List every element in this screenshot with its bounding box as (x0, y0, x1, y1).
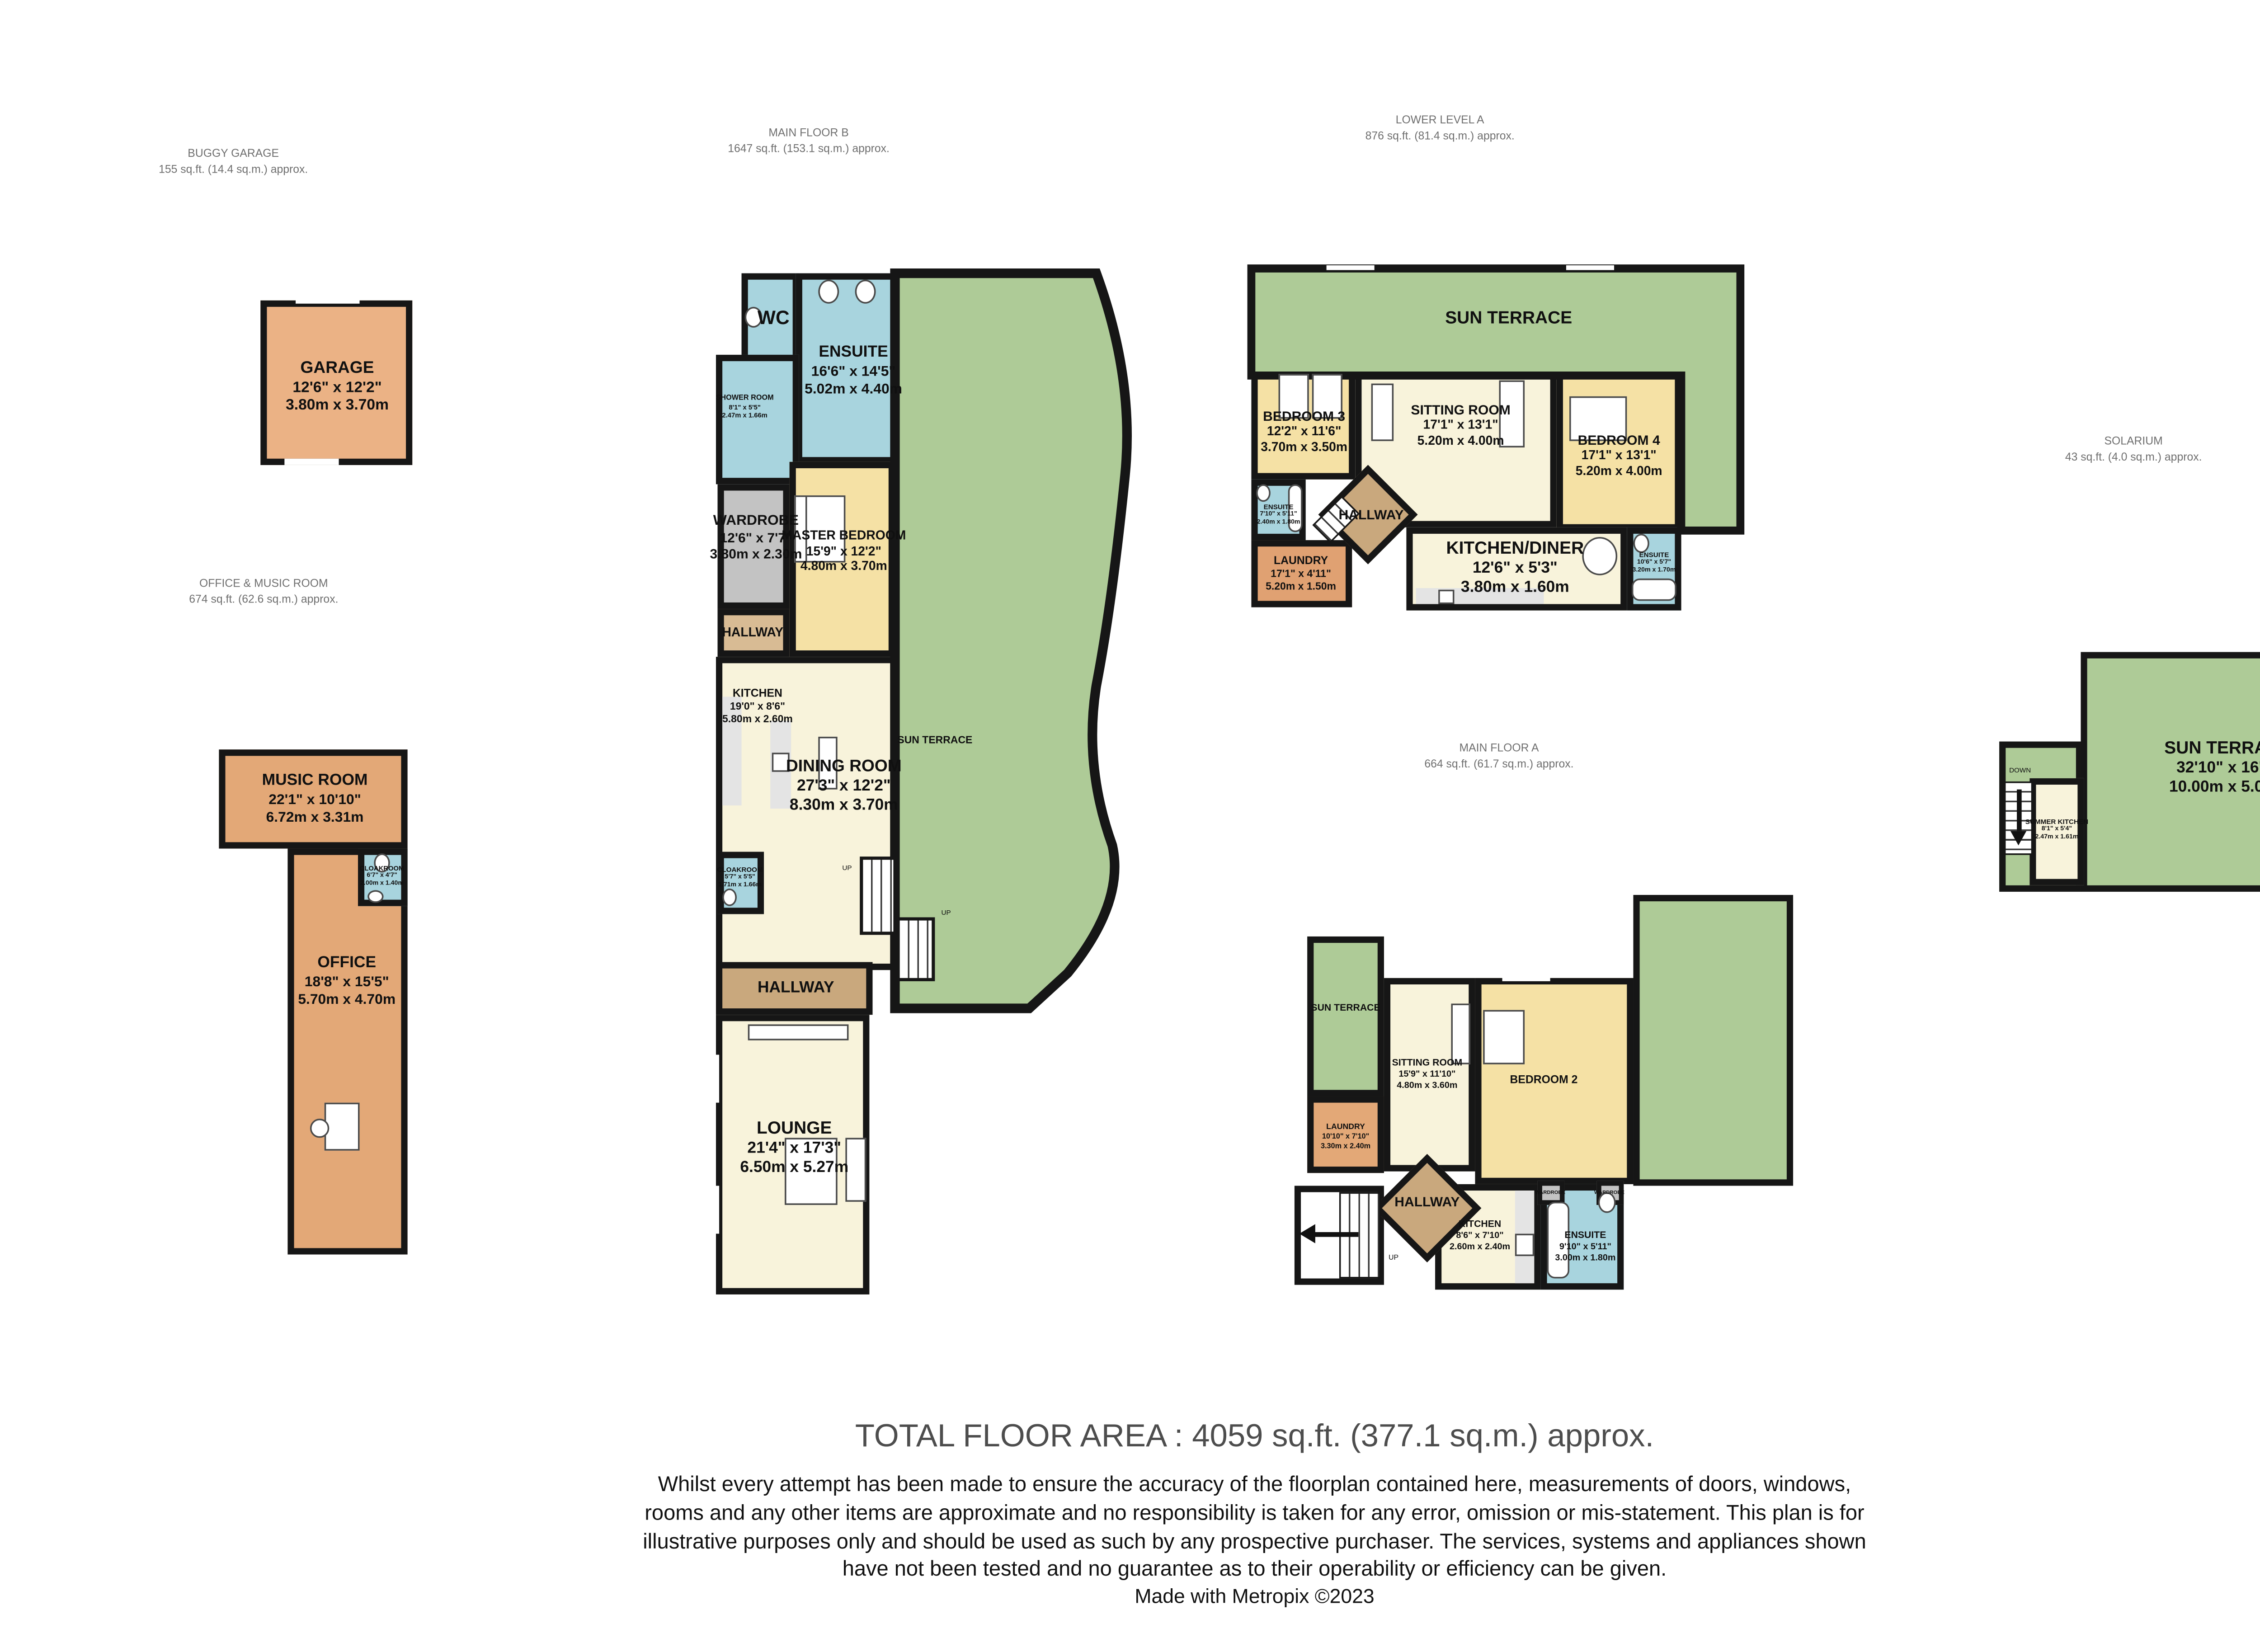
section-name: BUGGY GARAGE (159, 147, 308, 163)
stairs-main-b-upper (860, 857, 896, 935)
room-dim-metric: 6.50m x 5.27m (740, 1159, 848, 1178)
metropix-credit: Made with Metropix ©2023 (626, 1586, 1883, 1608)
section-name: MAIN FLOOR A (1424, 742, 1573, 758)
room-label-master-bedroom: MASTER BEDROOM 15'9" x 12'2" 4.80m x 3.7… (782, 528, 906, 574)
room-name: LAUNDRY (1321, 1123, 1370, 1132)
room-name: GARAGE (286, 358, 389, 379)
room-dim-imperial: 12'6" x 12'2" (286, 379, 389, 397)
room-name: SUN TERRACE (897, 735, 972, 748)
room-dim-metric: 2.47m x 1.61m (2025, 833, 2088, 841)
table-icon (1582, 537, 1617, 575)
room-name: SITTING ROOM (1411, 402, 1510, 418)
room-dim-imperial: 12'6" x 5'3" (1446, 560, 1584, 579)
room-label-music-room: MUSIC ROOM 22'1" x 10'10" 6.72m x 3.31m (262, 772, 368, 826)
up-text: UP (842, 864, 852, 872)
room-label-sun-terrace-b: SUN TERRACE (897, 735, 972, 748)
room-dim-metric: 5.20m x 1.50m (1266, 582, 1336, 595)
room-dim-imperial: 10'10" x 7'10" (1321, 1132, 1370, 1141)
sink-icon (367, 890, 383, 903)
room-dim-metric: 6.72m x 3.31m (262, 809, 368, 826)
room-label-summer-kitchen: SUMMER KITCHEN 8'1" x 5'4" 2.47m x 1.61m (2025, 818, 2088, 841)
window-terrace-la (1566, 265, 1614, 270)
room-label-garage: GARAGE 12'6" x 12'2" 3.80m x 3.70m (286, 358, 389, 415)
toilet-icon (1633, 534, 1649, 553)
room-name: MUSIC ROOM (262, 772, 368, 791)
shelf-icon (748, 1024, 849, 1040)
sink-icon (818, 280, 839, 304)
room-dim-metric: 1.71m x 1.66m (717, 881, 763, 889)
room-dim-imperial: 19'0" x 8'6" (722, 702, 793, 715)
room-dim-metric: 4.80m x 3.60m (1392, 1081, 1463, 1092)
room-label-lounge: LOUNGE 21'4" x 17'3" 6.50m x 5.27m (740, 1119, 848, 1178)
window-bedroom2 (1502, 975, 1550, 981)
room-dim-metric: 5.80m x 2.60m (722, 715, 793, 727)
footer-block: TOTAL FLOOR AREA : 4059 sq.ft. (377.1 sq… (626, 1419, 1883, 1608)
room-dim-metric: 3.80m x 1.60m (1446, 579, 1584, 598)
section-area: 43 sq.ft. (4.0 sq.m.) approx. (2065, 451, 2202, 466)
room-name: ENSUITE (805, 344, 902, 363)
room-name: HALLWAY (722, 625, 783, 640)
section-name: LOWER LEVEL A (1365, 114, 1515, 130)
room-name: KITCHEN (722, 689, 793, 702)
room-dim-imperial: 21'4" x 17'3" (740, 1140, 848, 1159)
room-dim-metric: 4.80m x 3.70m (782, 559, 906, 574)
section-area: 664 sq.ft. (61.7 sq.m.) approx. (1424, 758, 1573, 773)
desk-icon (325, 1103, 360, 1151)
room-name: WC (758, 306, 790, 329)
room-label-sun-terrace-sol: SUN TERRACE 32'10" x 16'5" 10.00m x 5.00… (2164, 739, 2260, 798)
room-label-ensuite-la2: ENSUITE 10'6" x 5'7" 3.20m x 1.70m (1632, 551, 1676, 574)
room-name: DINING ROOM (786, 757, 902, 777)
room-name: KITCHEN/DINER (1446, 539, 1584, 560)
door-gap-garage (284, 459, 339, 465)
room-dim-metric: 2.40m x 1.80m (1257, 519, 1300, 527)
sun-terrace-ma-right (1633, 895, 1793, 1186)
room-label-dining-room: DINING ROOM 27'3" x 12'2" 8.30m x 3.70m (786, 757, 902, 815)
room-name: HALLWAY (758, 979, 834, 998)
room-label-ensuite-la1: ENSUITE 7'10" x 5'11" 2.40m x 1.80m (1257, 503, 1300, 526)
room-name: SUN TERRACE (1445, 309, 1572, 330)
room-name: HALLWAY (1394, 1194, 1460, 1210)
sun-terrace-b-shape (889, 267, 1144, 1021)
room-name: ENSUITE (1555, 1232, 1615, 1243)
room-dim-metric: 3.70m x 3.50m (1261, 440, 1347, 455)
room-label-bedroom2: BEDROOM 2 (1510, 1075, 1578, 1089)
room-name: HALLWAY (1339, 506, 1404, 522)
room-label-sun-terrace-ma: SUN TERRACE (1311, 1004, 1380, 1016)
section-label-buggy-garage: BUGGY GARAGE 155 sq.ft. (14.4 sq.m.) app… (159, 147, 308, 179)
room-label-bedroom3: BEDROOM 3 12'2" x 11'6" 3.70m x 3.50m (1261, 408, 1347, 455)
room-dim-imperial: 27'3" x 12'2" (786, 777, 902, 796)
room-label-wc: WC (758, 306, 790, 329)
room-dim-imperial: 22'1" x 10'10" (262, 791, 368, 809)
window-lounge (713, 1186, 719, 1233)
room-label-hallway-b1: HALLWAY (722, 625, 783, 640)
room-dim-imperial: 8'6" x 7'10" (1450, 1232, 1510, 1243)
room-label-sun-terrace-la: SUN TERRACE (1445, 309, 1572, 330)
section-label-solarium: SOLARIUM 43 sq.ft. (4.0 sq.m.) approx. (2065, 435, 2202, 466)
room-label-sitting-la: SITTING ROOM 17'1" x 13'1" 5.20m x 4.00m (1411, 402, 1510, 449)
room-label-kitchen-b: KITCHEN 19'0" x 8'6" 5.80m x 2.60m (722, 689, 793, 727)
room-dim-metric: 5.70m x 4.70m (298, 991, 395, 1008)
room-dim-imperial: 15'9" x 11'10" (1392, 1071, 1463, 1082)
room-name: LAUNDRY (1266, 556, 1336, 569)
window-garage (296, 297, 359, 304)
arrow-left-icon (1299, 1224, 1315, 1243)
room-name: KITCHEN (1450, 1220, 1510, 1232)
room-dim-metric: 8.30m x 3.70m (786, 796, 902, 815)
room-shower-room (716, 355, 799, 484)
room-dim-imperial: 9'10" x 5'11" (1555, 1243, 1615, 1254)
room-label-wardrobe-ma2: WARDROBE (1594, 1191, 1624, 1197)
up-text: UP (942, 908, 951, 917)
room-name: WARDROBE (1594, 1191, 1624, 1197)
room-label-hallway-b2: HALLWAY (758, 979, 834, 998)
stairs-up-label: UP (1389, 1253, 1398, 1262)
room-name: LOUNGE (740, 1119, 848, 1140)
arrow-down-icon (2010, 831, 2026, 846)
toilet-icon (1256, 484, 1271, 502)
room-name: BEDROOM 3 (1261, 408, 1347, 424)
chair-icon (310, 1119, 329, 1138)
stairs-main-b-lower (897, 917, 935, 981)
room-label-bedroom4: BEDROOM 4 17'1" x 13'1" 5.20m x 4.00m (1576, 432, 1662, 479)
section-area: 876 sq.ft. (81.4 sq.m.) approx. (1365, 129, 1515, 145)
room-dim-metric: 5.20m x 4.00m (1576, 464, 1662, 479)
room-name: SUN TERRACE (1311, 1004, 1380, 1016)
room-dim-metric: 3.80m x 3.70m (286, 397, 389, 415)
window-terrace-la (1327, 265, 1375, 270)
room-label-hallway-ma: HALLWAY (1394, 1194, 1460, 1210)
room-dim-imperial: 32'10" x 16'5" (2164, 760, 2260, 779)
room-office (287, 848, 407, 1254)
room-label-kitchen-ma: KITCHEN 8'6" x 7'10" 2.60m x 2.40m (1450, 1220, 1510, 1253)
room-dim-imperial: 17'1" x 13'1" (1576, 448, 1662, 464)
room-dim-metric: 2.60m x 2.40m (1450, 1243, 1510, 1253)
sink-icon (855, 280, 876, 304)
armchair-icon (1371, 384, 1394, 441)
room-label-wardrobe-ma1: WARDROBE (1535, 1191, 1565, 1197)
room-dim-imperial: 12'2" x 11'6" (1261, 424, 1347, 440)
room-label-ensuite-b: ENSUITE 16'6" x 14'5" 5.02m x 4.40m (805, 344, 902, 398)
room-name: WARDROBE (710, 512, 802, 529)
room-dim-metric: 10.00m x 5.00m (2164, 779, 2260, 798)
up-text: UP (1389, 1253, 1398, 1262)
room-label-ensuite-ma: ENSUITE 9'10" x 5'11" 3.00m x 1.80m (1555, 1232, 1615, 1265)
bed-icon (1483, 1010, 1525, 1064)
room-dim-imperial: 17'1" x 13'1" (1411, 418, 1510, 433)
stove-icon (1515, 1234, 1534, 1256)
floorplan-canvas: BUGGY GARAGE 155 sq.ft. (14.4 sq.m.) app… (0, 0, 2260, 1652)
total-floor-area: TOTAL FLOOR AREA : 4059 sq.ft. (377.1 sq… (626, 1419, 1883, 1456)
room-label-kitchen-diner: KITCHEN/DINER 12'6" x 5'3" 3.80m x 1.60m (1446, 539, 1584, 598)
room-label-cloakroom-om: CLOAKROOM 6'7" x 4'7" 2.00m x 1.40m (360, 864, 405, 888)
room-name: SITTING ROOM (1392, 1059, 1463, 1070)
bathtub-icon (1632, 579, 1676, 601)
room-name: OFFICE (298, 955, 395, 974)
section-area: 1647 sq.ft. (153.1 sq.m.) approx. (728, 142, 890, 158)
disclaimer-text: Whilst every attempt has been made to en… (626, 1470, 1883, 1584)
room-label-sitting-ma: SITTING ROOM 15'9" x 11'10" 4.80m x 3.60… (1392, 1059, 1463, 1092)
room-dim-imperial: 15'9" x 12'2" (782, 544, 906, 559)
room-dim-imperial: 17'1" x 4'11" (1266, 569, 1336, 582)
section-area: 155 sq.ft. (14.4 sq.m.) approx. (159, 163, 308, 179)
section-label-main-floor-b: MAIN FLOOR B 1647 sq.ft. (153.1 sq.m.) a… (728, 127, 890, 158)
room-label-laundry-la: LAUNDRY 17'1" x 4'11" 5.20m x 1.50m (1266, 556, 1336, 594)
room-label-office: OFFICE 18'8" x 15'5" 5.70m x 4.70m (298, 955, 395, 1008)
stairs-up-label: UP (842, 864, 852, 872)
section-name: SOLARIUM (2065, 435, 2202, 451)
section-label-lower-level-a: LOWER LEVEL A 876 sq.ft. (81.4 sq.m.) ap… (1365, 114, 1515, 145)
room-label-hallway-la: HALLWAY (1339, 506, 1404, 522)
room-name: BEDROOM 2 (1510, 1075, 1578, 1089)
room-name: SUN TERRACE (2164, 739, 2260, 760)
stairs-arrow-shaft (2016, 790, 2021, 831)
stairs-down-label: DOWN (2009, 766, 2031, 774)
room-dim-metric: 3.00m x 1.80m (1555, 1254, 1615, 1265)
room-name: SHOWER ROOM (716, 394, 774, 402)
toilet-icon (722, 889, 737, 906)
window-lounge (713, 1055, 719, 1103)
stairs-up-label: UP (942, 908, 951, 917)
room-dim-metric: 2.00m x 1.40m (360, 880, 405, 887)
room-name: WARDROBE (1535, 1191, 1565, 1197)
section-name: MAIN FLOOR B (728, 127, 890, 142)
section-label-main-floor-a: MAIN FLOOR A 664 sq.ft. (61.7 sq.m.) app… (1424, 742, 1573, 773)
room-dim-imperial: 16'6" x 14'5" (805, 363, 902, 380)
down-text: DOWN (2009, 766, 2031, 774)
section-name: OFFICE & MUSIC ROOM (189, 577, 338, 593)
room-label-cloakroom-b: CLOAKROOM 5'7" x 5'5" 1.71m x 1.66m (717, 866, 763, 889)
sofa-icon (1451, 1003, 1470, 1064)
room-dim-metric: 5.20m x 4.00m (1411, 433, 1510, 449)
room-dim-imperial: 18'8" x 15'5" (298, 974, 395, 991)
room-dim-imperial: 8'1" x 5'5" (716, 402, 774, 410)
room-dim-metric: 2.47m x 1.66m (716, 410, 774, 419)
room-dim-metric: 5.02m x 4.40m (805, 380, 902, 397)
section-area: 674 sq.ft. (62.6 sq.m.) approx. (189, 593, 338, 609)
room-name: BEDROOM 4 (1576, 432, 1662, 448)
stairs-arrow-shaft (1314, 1232, 1358, 1237)
sun-terrace-ma-left (1307, 937, 1384, 1097)
room-label-shower-room: SHOWER ROOM 8'1" x 5'5" 2.47m x 1.66m (716, 394, 774, 419)
room-dim-metric: 3.20m x 1.70m (1632, 567, 1676, 574)
room-name: MASTER BEDROOM (782, 528, 906, 544)
section-label-office-music: OFFICE & MUSIC ROOM 674 sq.ft. (62.6 sq.… (189, 577, 338, 608)
room-dim-metric: 3.30m x 2.40m (1321, 1141, 1370, 1149)
room-label-laundry-ma: LAUNDRY 10'10" x 7'10" 3.30m x 2.40m (1321, 1123, 1370, 1150)
